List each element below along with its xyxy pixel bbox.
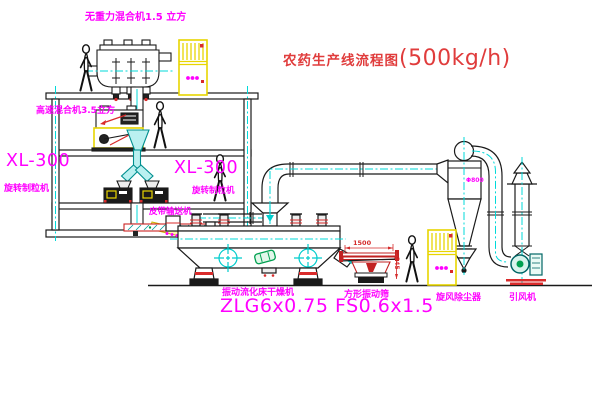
label-dryer-model: ZLG6x0.75 bbox=[220, 297, 328, 316]
label-belt-conveyor: 皮带输送机 bbox=[149, 208, 192, 217]
process-flow-drawing: 农药生产线流程图(500kg/h) 无重力混合机1.5 立方 高速混合机3.5立… bbox=[0, 0, 600, 403]
worker-floor2 bbox=[154, 102, 165, 148]
title-capacity: (500kg/h) bbox=[399, 46, 511, 71]
label-xl300-right: XL-300 bbox=[174, 160, 238, 178]
induced-draft-fan bbox=[506, 254, 546, 285]
dim-screen-height: 345 bbox=[393, 257, 399, 270]
label-granulator-left: 旋转制粒机 bbox=[4, 185, 49, 194]
worker-ground bbox=[406, 236, 417, 282]
dryer-feet bbox=[190, 268, 322, 285]
control-cabinet-1 bbox=[179, 40, 207, 95]
dim-screen-length: 1500 bbox=[353, 240, 371, 247]
drawing-title: 农药生产线流程图(500kg/h) bbox=[283, 46, 511, 71]
control-cabinet-2 bbox=[428, 230, 456, 285]
label-cyclone: 旋风除尘器 bbox=[436, 294, 481, 303]
label-xl300-left: XL-300 bbox=[6, 153, 70, 171]
label-high-speed-mixer: 高速混合机3.5立方 bbox=[36, 107, 115, 116]
fluid-bed-dryer bbox=[166, 203, 355, 285]
label-induced-fan: 引风机 bbox=[509, 294, 536, 303]
label-screen-model: FS0.6x1.5 bbox=[335, 297, 434, 316]
dim-cyclone-diameter: Φ800 bbox=[466, 178, 484, 184]
label-weightless-mixer: 无重力混合机1.5 立方 bbox=[85, 13, 186, 24]
title-text: 农药生产线流程图 bbox=[283, 53, 399, 69]
label-granulator-right: 旋转制粒机 bbox=[192, 187, 235, 196]
